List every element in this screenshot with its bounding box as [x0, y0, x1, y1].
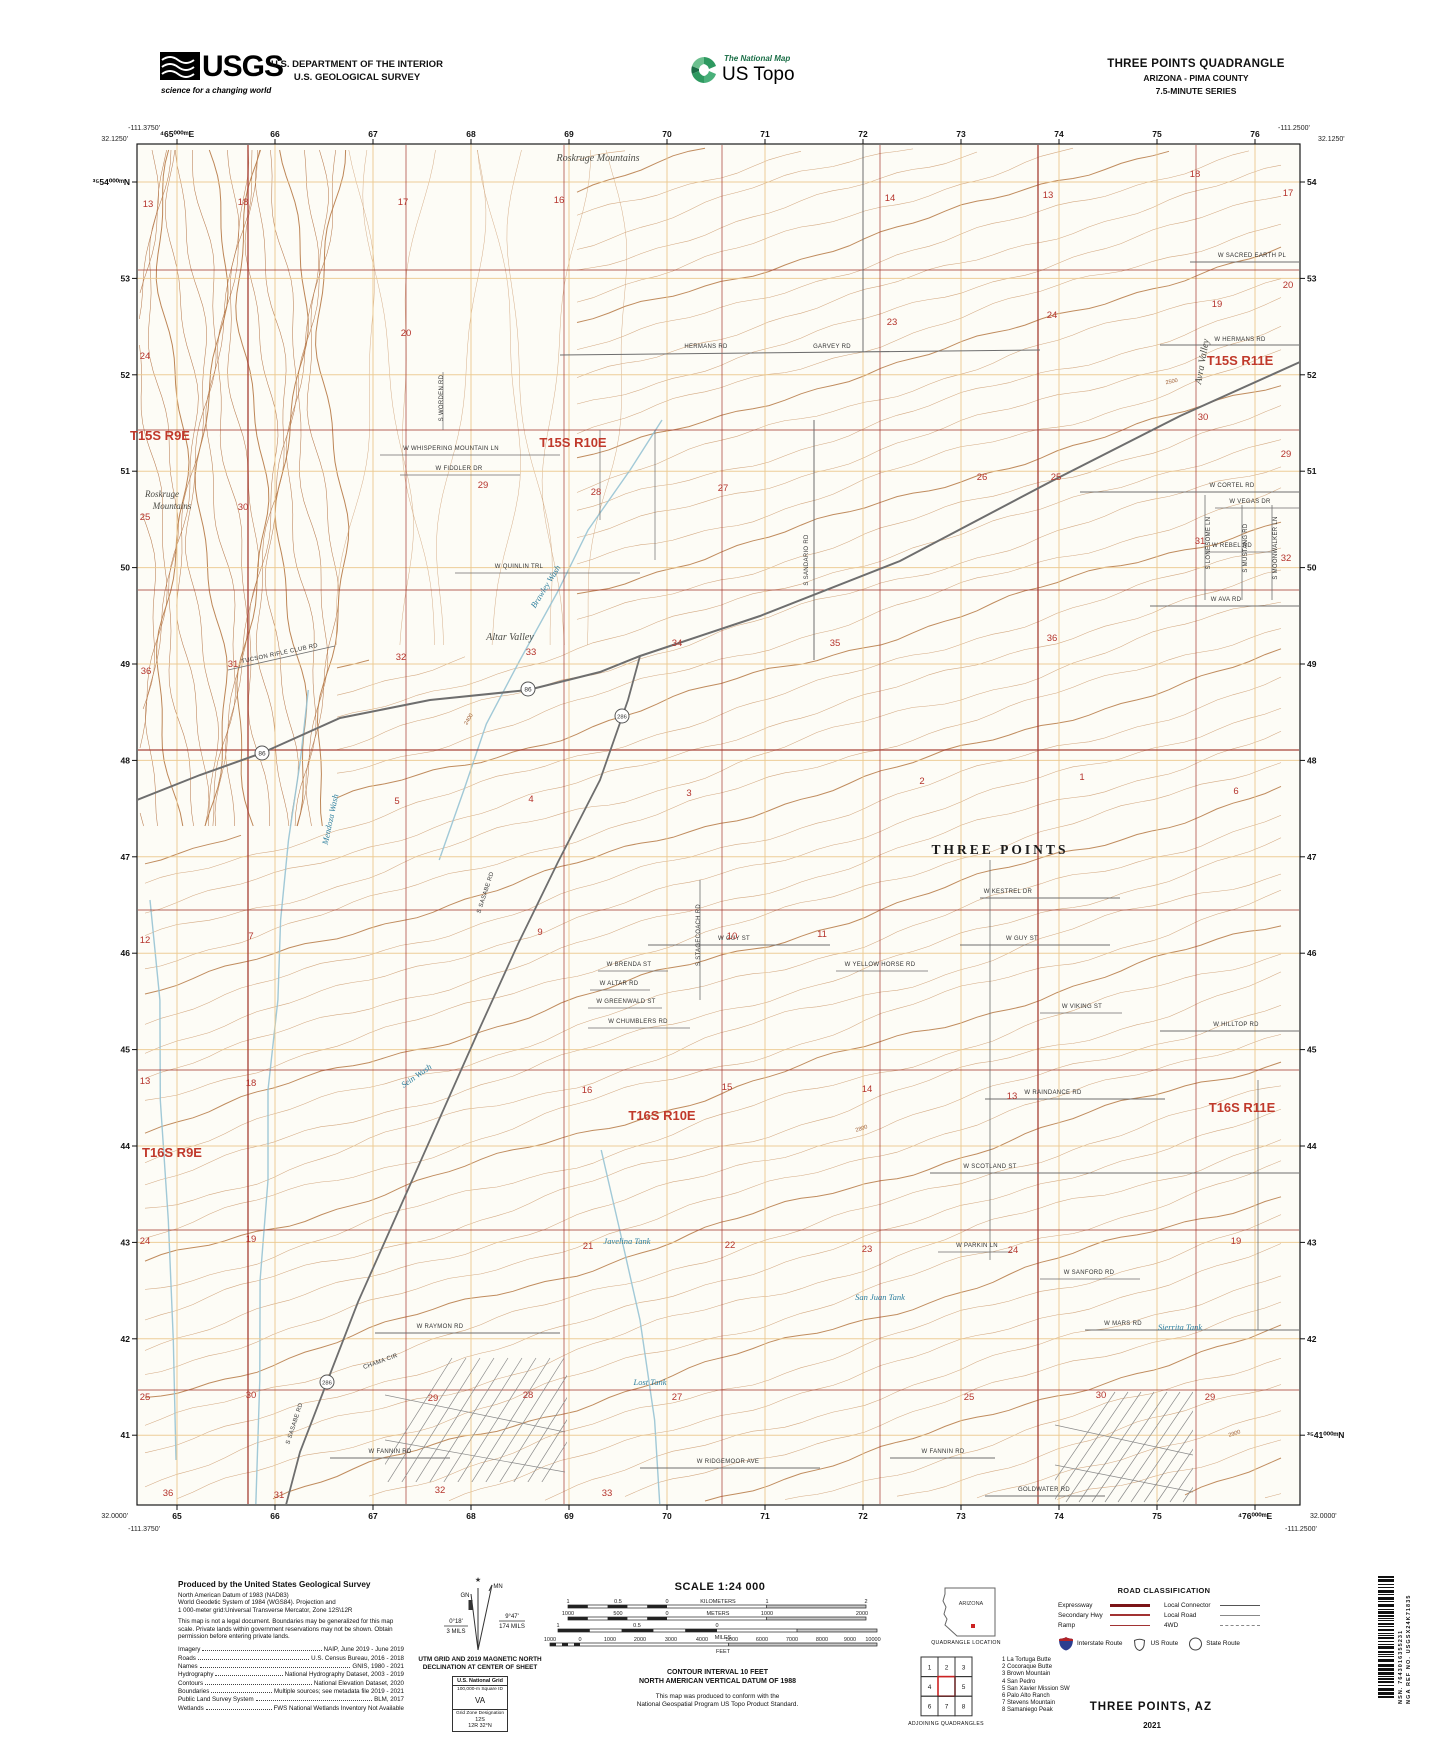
legal-note: This map is not a legal document. Bounda… [178, 1618, 404, 1640]
quad-location-dot [971, 1624, 975, 1628]
section-number: 32 [1281, 553, 1292, 564]
section-number: 31 [1195, 536, 1206, 547]
state-route-circle-icon [1188, 1637, 1203, 1651]
adjoining-quads-caption: ADJOINING QUADRANGLES [896, 1721, 996, 1727]
section-number: 14 [862, 1084, 873, 1095]
route-shield: 86 [521, 682, 535, 696]
section-number: 32 [435, 1485, 446, 1496]
road-label: W CHUMBLERS RD [608, 1019, 668, 1025]
grid-label-left: 48 [121, 755, 131, 765]
scale-tick-label: 4000 [696, 1637, 708, 1643]
corner-coord: 32.0000' [101, 1513, 128, 1520]
section-number: 16 [554, 195, 565, 206]
section-number: 25 [140, 512, 151, 523]
road-label: W HERMANS RD [1214, 337, 1266, 343]
section-number: 28 [591, 487, 602, 498]
grid-label-right: 47 [1307, 852, 1317, 862]
scale-tick-label: 1 [566, 1599, 569, 1605]
adjoining-quad-number: 2 [945, 1664, 949, 1671]
adjoining-quad-number: 3 [962, 1664, 966, 1671]
route-shield: 286 [320, 1375, 334, 1389]
route-number: 86 [258, 750, 266, 757]
grid-label-left: 41 [121, 1430, 131, 1440]
scale-tick-label: 3000 [665, 1637, 677, 1643]
road-label: W VIKING ST [1062, 1004, 1102, 1010]
water-feature-label: Sierrita Tank [1158, 1322, 1203, 1332]
grid-label-top: 70 [662, 129, 672, 139]
road-label: W GREENWALD ST [596, 999, 655, 1005]
section-number: 30 [1096, 1390, 1107, 1401]
place-name: Roskruge [144, 489, 179, 499]
scale-tick-label: 0.5 [614, 1599, 622, 1605]
road-label: W SACRED EARTH PL [1218, 253, 1287, 259]
barcode: NSN. 7643016355231NGA REF NO. USGSX24K71… [1378, 1574, 1424, 1712]
scale-notes: CONTOUR INTERVAL 10 FEET NORTH AMERICAN … [555, 1668, 880, 1709]
state-route-legend: State Route [1188, 1637, 1240, 1651]
section-number: 18 [238, 197, 249, 208]
grid-label-right: 43 [1307, 1237, 1317, 1247]
route-number: 286 [617, 714, 627, 720]
section-number: 29 [428, 1393, 439, 1404]
adjoining-quad-name: 4 San Pedro [1002, 1679, 1102, 1686]
scale-tick-label: 10000 [865, 1637, 880, 1643]
road-label: GOLDWATER RD [1018, 1487, 1070, 1493]
grid-label-bottom: 67 [368, 1511, 378, 1521]
us-route-legend: US Route [1132, 1637, 1178, 1651]
adjoining-quad-name: 3 Brown Mountain [1002, 1671, 1102, 1678]
road-class-row: Local Road [1164, 1610, 1270, 1620]
usgs-logo [160, 52, 200, 85]
section-number: 19 [246, 1234, 257, 1245]
data-sources: ImageryNAIP, June 2019 - June 2019RoadsU… [178, 1645, 404, 1711]
datum-line: World Geodetic System of 1984 (WGS84). P… [178, 1599, 404, 1606]
grid-label-left: 51 [121, 466, 131, 476]
section-number: 36 [163, 1488, 174, 1499]
department-line1: U.S. DEPARTMENT OF THE INTERIOR [252, 58, 462, 71]
corner-coord: -111.3750' [128, 125, 160, 132]
interstate-shield-icon [1058, 1636, 1074, 1651]
grid-label-left: 44 [121, 1141, 131, 1151]
section-number: 28 [523, 1390, 534, 1401]
road-label: W YELLOW HORSE RD [845, 962, 916, 968]
true-north-star: ★ [475, 1576, 481, 1584]
credits-title: Produced by the United States Geological… [178, 1580, 404, 1589]
place-name: Roskruge Mountains [555, 153, 639, 164]
route-shield: 286 [615, 709, 629, 723]
section-number: 12 [140, 935, 151, 946]
nga-ref-number: NGA REF NO. USGSX24K71835 [1406, 1594, 1412, 1704]
conformance-note-2: National Geospatial Program US Topo Prod… [555, 1701, 880, 1709]
grid-label-right: 51 [1307, 466, 1317, 476]
adjoining-quad-name: 5 San Xavier Mission SW [1002, 1686, 1102, 1693]
section-number: 19 [1231, 1236, 1242, 1247]
section-number: 13 [140, 1076, 151, 1087]
road-class-right-col: Local ConnectorLocal Road4WD [1164, 1600, 1270, 1630]
grid-label-left: 52 [121, 370, 131, 380]
grid-label-left: 50 [121, 563, 131, 573]
adjoining-quad-number: 5 [962, 1684, 966, 1691]
usng-box: U.S. National Grid 100,000-m Square ID V… [452, 1676, 508, 1732]
ustopo-logo: The National Map US Topo [688, 52, 720, 91]
us-route-shield-icon [1132, 1637, 1147, 1651]
scale-tick-label: 0 [665, 1611, 668, 1617]
water-feature-label: Lost Tank [633, 1377, 667, 1387]
road-label: W VEGAS DR [1229, 499, 1271, 505]
scale-tick-label: 0 [665, 1599, 668, 1605]
scale-tick-label: 9000 [844, 1637, 856, 1643]
adjoining-quad-number: 7 [945, 1704, 949, 1711]
section-number: 24 [140, 1236, 151, 1247]
place-name: Altar Valley [485, 632, 534, 643]
source-row: RoadsU.S. Census Bureau, 2016 - 2018 [178, 1654, 404, 1662]
grid-label-right: 42 [1307, 1334, 1317, 1344]
quad-series: 7.5-MINUTE SERIES [1096, 86, 1296, 96]
grid-label-right: 46 [1307, 948, 1317, 958]
scale-unit-label: FEET [716, 1649, 731, 1655]
ustopo-product: US Topo [722, 64, 795, 86]
section-number: 24 [1047, 310, 1058, 321]
section-number: 9 [537, 927, 542, 938]
source-row: BoundariesMultiple sources; see metadata… [178, 1687, 404, 1695]
conformance-note-1: This map was produced to conform with th… [555, 1693, 880, 1701]
section-number: 24 [140, 351, 151, 362]
declination-diagram: ★ GN MN 0°18' 3 MILS 9°47' 174 MILS [415, 1570, 545, 1662]
road-classification: ROAD CLASSIFICATION ExpresswaySecondary … [1058, 1586, 1270, 1651]
grid-label-left: 53 [121, 273, 131, 283]
scale-tick-label: 8000 [816, 1637, 828, 1643]
grid-label-top: 68 [466, 129, 476, 139]
scale-tick-label: 6000 [756, 1637, 768, 1643]
section-number: 31 [228, 659, 239, 670]
road-label: W RAYMON RD [417, 1324, 464, 1330]
connector-line-sample [1220, 1605, 1260, 1606]
usng-zone-values: 12S 12R 32°N [453, 1716, 507, 1731]
grid-label-left: 43 [121, 1237, 131, 1247]
corner-coord: -111.2500' [1278, 125, 1310, 132]
state-name: ARIZONA [959, 1601, 984, 1607]
scale-tick-label: 0 [578, 1637, 581, 1643]
scale-tick-label: METERS [707, 1611, 730, 1617]
road-label: W PARKIN LN [956, 1243, 998, 1249]
township-range-label: T16S R10E [628, 1108, 696, 1123]
section-number: 10 [727, 931, 738, 942]
sheet-year: 2021 [1092, 1721, 1212, 1730]
road-class-left-col: ExpresswaySecondary HwyRamp [1058, 1600, 1164, 1630]
department-line2: U.S. GEOLOGICAL SURVEY [252, 71, 462, 84]
usng-square-id: VA [453, 1692, 507, 1709]
section-number: 32 [396, 652, 407, 663]
usng-zone-label: Grid Zone Designation [453, 1709, 507, 1716]
grid-label-left: ³⁵54⁰⁰⁰ᵐN [93, 177, 130, 187]
section-number: 6 [1233, 786, 1238, 797]
place-name: Mountains [152, 501, 192, 511]
corner-coord: 32.1250' [1318, 136, 1345, 143]
section-number: 27 [672, 1392, 683, 1403]
road-label: W QUINLIN TRL [495, 564, 544, 570]
section-number: 33 [602, 1488, 613, 1499]
adjoining-quad-number: 4 [928, 1684, 932, 1691]
section-number: 21 [583, 1241, 594, 1252]
corner-coord: -111.2500' [1285, 1526, 1317, 1533]
scale-tick-label: 1 [765, 1599, 768, 1605]
place-name: THREE POINTS [932, 842, 1069, 857]
grid-label-right: 45 [1307, 1045, 1317, 1055]
scale-tick-label: 1000 [544, 1637, 556, 1643]
grid-label-right: 52 [1307, 370, 1317, 380]
section-number: 25 [964, 1392, 975, 1403]
grid-label-right: 48 [1307, 755, 1317, 765]
source-row: Public Land Survey SystemBLM, 2017 [178, 1695, 404, 1703]
usgs-topo-sheet: { "header": { "usgs": {"word": "USGS", "… [0, 0, 1445, 1746]
scale-tick-label: KILOMETERS [700, 1599, 736, 1605]
road-label: W SCOTLAND ST [963, 1164, 1016, 1170]
section-number: 25 [140, 1392, 151, 1403]
road-label: W RIDGEMOOR AVE [697, 1459, 759, 1465]
road-label: W FANNIN RD [369, 1449, 412, 1455]
corner-coord: 32.1250' [101, 136, 128, 143]
road-class-row: Expressway [1058, 1600, 1164, 1610]
section-number: 27 [718, 483, 729, 494]
section-number: 7 [248, 931, 253, 942]
sheet-name: THREE POINTS, AZ [1040, 1701, 1212, 1713]
source-row: NamesGNIS, 1980 - 2021 [178, 1662, 404, 1670]
grid-label-right: 44 [1307, 1141, 1317, 1151]
scale-tick-label: 2000 [856, 1611, 868, 1617]
grid-label-bottom: 73 [956, 1511, 966, 1521]
grid-label-bottom: 68 [466, 1511, 476, 1521]
datum-lines: North American Datum of 1983 (NAD83)Worl… [178, 1592, 404, 1614]
section-number: 18 [1190, 169, 1201, 180]
adjoining-quad-number: 8 [962, 1704, 966, 1711]
township-range-label: T15S R9E [130, 428, 190, 443]
section-number: 29 [1281, 449, 1292, 460]
grid-label-top: 76 [1250, 129, 1260, 139]
section-number: 3 [686, 788, 691, 799]
road-label: W CORTEL RD [1210, 483, 1255, 489]
section-number: 31 [274, 1490, 285, 1501]
usng-square-label: 100,000-m Square ID [453, 1686, 507, 1692]
ramp-line-sample [1110, 1625, 1150, 1626]
interstate-route-label: Interstate Route [1077, 1640, 1122, 1647]
quad-state-county: ARIZONA - PIMA COUNTY [1096, 73, 1296, 83]
township-range-label: T15S R11E [1207, 353, 1274, 368]
road-class-row: Secondary Hwy [1058, 1610, 1164, 1620]
grid-label-bottom: 66 [270, 1511, 280, 1521]
adjoining-quad-name: 6 Palo Alto Ranch [1002, 1693, 1102, 1700]
quad-title: THREE POINTS QUADRANGLE [1096, 58, 1296, 70]
source-row: ImageryNAIP, June 2019 - June 2019 [178, 1645, 404, 1653]
us-route-label: US Route [1150, 1640, 1178, 1647]
water-feature-label: Javelina Tank [603, 1236, 650, 1246]
section-number: 30 [1198, 412, 1209, 423]
township-range-label: T16S R9E [142, 1145, 202, 1160]
quad-location-caption: QUADRANGLE LOCATION [912, 1640, 1020, 1646]
grid-label-right: 54 [1307, 177, 1317, 187]
section-number: 20 [1283, 280, 1294, 291]
department-heading: U.S. DEPARTMENT OF THE INTERIOR U.S. GEO… [252, 58, 462, 84]
section-number: 1 [1079, 772, 1084, 783]
grid-label-left: 47 [121, 852, 131, 862]
contour-interval-note: CONTOUR INTERVAL 10 FEET [555, 1668, 880, 1677]
grid-label-top: 66 [270, 129, 280, 139]
grid-label-top: 75 [1152, 129, 1162, 139]
section-number: 20 [401, 328, 412, 339]
grid-label-right: 49 [1307, 659, 1317, 669]
grid-label-right: 53 [1307, 273, 1317, 283]
section-number: 30 [246, 1390, 257, 1401]
road-label: W KESTREL DR [984, 889, 1033, 895]
fourwd-line-sample [1220, 1625, 1260, 1626]
grid-label-left: 46 [121, 948, 131, 958]
grid-label-top: 69 [564, 129, 574, 139]
usgs-flag-icon [160, 52, 200, 80]
interstate-route-legend: Interstate Route [1058, 1636, 1122, 1651]
grid-label-top: 67 [368, 129, 378, 139]
mn-mils: 174 MILS [499, 1624, 525, 1630]
grid-label-top: 71 [760, 129, 770, 139]
road-label: HERMANS RD [684, 344, 728, 350]
section-number: 24 [1008, 1245, 1019, 1256]
road-label: S STAGECOACH RD [696, 904, 702, 966]
grid-label-bottom: 71 [760, 1511, 770, 1521]
road-label: W ALTAR RD [600, 981, 639, 987]
grid-label-bottom: 72 [858, 1511, 868, 1521]
local-line-sample [1220, 1615, 1260, 1616]
mn-degrees: 9°47' [505, 1614, 519, 1620]
scale-tick-label: 1000 [562, 1611, 574, 1617]
grid-label-right: ³⁵41⁰⁰⁰ᵐN [1307, 1430, 1344, 1440]
section-number: 19 [1212, 299, 1223, 310]
grid-label-bottom: 65 [172, 1511, 182, 1521]
grid-label-right: 50 [1307, 563, 1317, 573]
grid-north-label: GN [461, 1593, 470, 1599]
declination-caption: UTM GRID AND 2019 MAGNETIC NORTH DECLINA… [398, 1656, 562, 1672]
scale-bars: 10.50KILOMETERS1210005000METERS100020001… [540, 1595, 900, 1659]
road-label: W RAINDANCE RD [1024, 1090, 1082, 1096]
section-number: 35 [830, 638, 841, 649]
road-label: W BRENDA ST [607, 962, 652, 968]
source-row: WetlandsFWS National Wetlands Inventory … [178, 1704, 404, 1712]
adjoining-quad-name: 1 La Tortuga Butte [1002, 1657, 1102, 1664]
road-label: GARVEY RD [813, 344, 851, 350]
section-number: 30 [238, 502, 249, 513]
scale-tick-label: 7000 [786, 1637, 798, 1643]
road-class-title: ROAD CLASSIFICATION [1058, 1586, 1270, 1595]
vertical-datum-note: NORTH AMERICAN VERTICAL DATUM OF 1988 [555, 1677, 880, 1686]
grid-label-top: 72 [858, 129, 868, 139]
scale-tick-label: 0.5 [633, 1623, 641, 1629]
grid-label-top: 74 [1054, 129, 1064, 139]
section-number: 36 [1047, 633, 1058, 644]
section-number: 33 [526, 647, 537, 658]
section-number: 25 [1051, 472, 1062, 483]
section-number: 17 [398, 197, 409, 208]
section-number: 13 [143, 199, 154, 210]
road-label: S LONESOME LN [1206, 517, 1212, 570]
road-class-row: 4WD [1164, 1620, 1270, 1630]
section-number: 2 [919, 776, 924, 787]
grid-label-bottom: 69 [564, 1511, 574, 1521]
conformance-note: This map was produced to conform with th… [555, 1693, 880, 1709]
section-number: 18 [246, 1078, 257, 1089]
grid-label-bottom: 70 [662, 1511, 672, 1521]
section-number: 29 [1205, 1392, 1216, 1403]
gn-degrees: 0°18' [449, 1619, 463, 1625]
usgs-tagline: science for a changing world [161, 86, 271, 95]
magnetic-north-label: MN [493, 1584, 502, 1590]
water-feature-label: San Juan Tank [855, 1292, 905, 1302]
state-route-label: State Route [1206, 1640, 1240, 1647]
scale-title: SCALE 1:24 000 [640, 1581, 800, 1593]
route-shield: 86 [255, 746, 269, 760]
scale-tick-label: 1000 [604, 1637, 616, 1643]
road-label: W FANNIN RD [922, 1449, 965, 1455]
road-label: W WHISPERING MOUNTAIN LN [403, 446, 499, 452]
section-number: 16 [582, 1085, 593, 1096]
section-number: 23 [862, 1244, 873, 1255]
declination-caption-1: UTM GRID AND 2019 MAGNETIC NORTH [398, 1656, 562, 1664]
secondary-line-sample [1110, 1614, 1150, 1616]
grid-label-top: 73 [956, 129, 966, 139]
scale-tick-label: 2000 [634, 1637, 646, 1643]
road-label: W HILLTOP RD [1213, 1022, 1259, 1028]
grid-label-bottom: 74 [1054, 1511, 1064, 1521]
section-number: 22 [725, 1240, 736, 1251]
township-range-label: T15S R10E [539, 435, 607, 450]
gn-mils: 3 MILS [446, 1629, 465, 1635]
quadrangle-title-block: THREE POINTS QUADRANGLE ARIZONA - PIMA C… [1096, 58, 1296, 96]
section-number: 14 [885, 193, 896, 204]
production-credits: Produced by the United States Geological… [178, 1580, 404, 1712]
road-label: W FIDDLER DR [436, 466, 483, 472]
road-label: W GUY ST [1006, 936, 1038, 942]
grid-label-left: 49 [121, 659, 131, 669]
topo-map: ⁴65⁰⁰⁰ᵐE66676869707172737475766566676869… [0, 0, 1445, 1746]
route-number: 286 [322, 1380, 332, 1386]
scale-tick-label: 1 [556, 1623, 559, 1629]
adjoining-quad-name: 2 Cocoraque Butte [1002, 1664, 1102, 1671]
expressway-line-sample [1110, 1604, 1150, 1607]
township-range-label: T16S R11E [1209, 1100, 1276, 1115]
nsn-number: NSN. 7643016355231 [1398, 1630, 1404, 1704]
section-number: 23 [887, 317, 898, 328]
datum-line: 1 000-meter grid:Universal Transverse Me… [178, 1607, 404, 1614]
grid-label-top: ⁴65⁰⁰⁰ᵐE [160, 129, 195, 139]
usng-lat-band: 32°N [480, 1723, 492, 1729]
grid-label-bottom: ⁴76⁰⁰⁰ᵐE [1238, 1511, 1273, 1521]
scale-tick-label: 500 [613, 1611, 622, 1617]
road-label: W AVA RD [1211, 597, 1242, 603]
section-number: 5 [394, 796, 399, 807]
section-number: 29 [478, 480, 489, 491]
usng-title: U.S. National Grid [453, 1677, 507, 1686]
road-label: S SANDARIO RD [804, 534, 810, 586]
road-label: W MARS RD [1104, 1321, 1142, 1327]
adjoining-quad-number: 1 [928, 1664, 932, 1671]
section-number: 13 [1007, 1091, 1018, 1102]
section-number: 26 [977, 472, 988, 483]
source-row: ContoursNational Elevation Dataset, 2020 [178, 1679, 404, 1687]
usng-zone-2: 12R [468, 1723, 478, 1729]
section-number: 34 [672, 638, 683, 649]
road-class-row: Local Connector [1164, 1600, 1270, 1610]
road-label: S WORDEN RD [439, 374, 445, 421]
route-number: 86 [524, 686, 532, 693]
state-locator: ARIZONA [933, 1586, 997, 1638]
corner-coord: 32.0000' [1310, 1513, 1337, 1520]
road-label: S MOONWALKER LN [1273, 516, 1279, 579]
grid-label-left: 45 [121, 1045, 131, 1055]
